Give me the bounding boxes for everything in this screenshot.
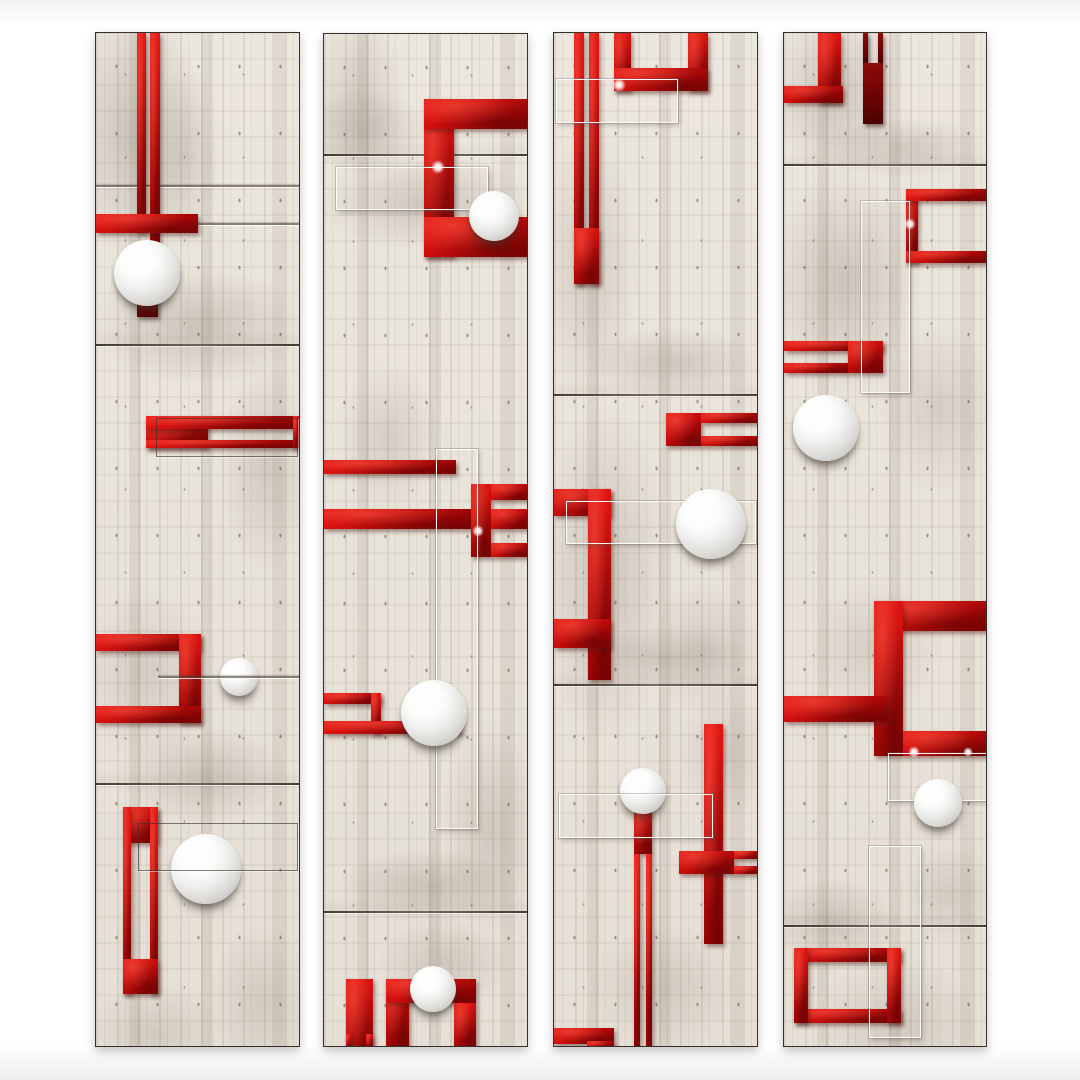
dark-red-block xyxy=(863,33,868,63)
red-block xyxy=(784,86,843,103)
sparkle-glint xyxy=(431,160,445,174)
red-block xyxy=(574,228,599,284)
dark-outline xyxy=(138,823,298,871)
glass-outline xyxy=(559,794,713,838)
sphere-3d xyxy=(469,191,519,241)
red-block xyxy=(906,189,987,201)
red-block xyxy=(587,1041,614,1047)
texture-smudge xyxy=(211,923,300,1047)
groove-line xyxy=(96,185,300,187)
red-block xyxy=(491,543,528,557)
sphere-3d xyxy=(914,779,962,827)
red-block xyxy=(634,854,640,1046)
red-block xyxy=(679,851,734,874)
red-block xyxy=(96,214,198,233)
panel-seam xyxy=(554,684,758,686)
glass-outline xyxy=(436,449,478,829)
red-block xyxy=(701,413,758,423)
groove-line xyxy=(158,676,300,678)
dark-red-block xyxy=(863,63,883,124)
panel-4 xyxy=(783,32,987,1047)
red-block xyxy=(96,706,201,723)
glass-outline xyxy=(869,846,921,1038)
red-block xyxy=(150,33,160,243)
panel-seam xyxy=(96,783,300,785)
panel-3 xyxy=(553,32,758,1047)
red-block xyxy=(454,1003,476,1047)
red-block xyxy=(734,866,758,874)
sparkle-glint xyxy=(612,78,626,92)
red-block xyxy=(906,251,987,263)
panel-seam xyxy=(96,344,300,346)
sparkle-glint xyxy=(904,218,916,230)
panel-1 xyxy=(95,32,300,1047)
panel-2 xyxy=(323,33,528,1047)
texture-smudge xyxy=(339,364,439,514)
texture-smudge xyxy=(95,983,221,1047)
red-block xyxy=(491,484,528,500)
sphere-3d xyxy=(401,680,467,746)
red-block xyxy=(137,33,146,233)
red-block xyxy=(646,854,652,1046)
sparkle-glint xyxy=(963,747,973,757)
red-block xyxy=(734,851,758,859)
sphere-3d xyxy=(410,966,456,1012)
sphere-3d xyxy=(114,240,180,306)
dark-outline xyxy=(156,418,298,457)
panel-seam xyxy=(324,911,528,913)
panel-seam xyxy=(554,394,758,396)
red-block xyxy=(784,696,888,722)
artwork-canvas xyxy=(0,0,1080,1080)
panel-seam xyxy=(784,164,987,166)
red-block xyxy=(491,509,528,529)
dark-red-block xyxy=(878,33,883,63)
red-block xyxy=(784,363,848,373)
sparkle-glint xyxy=(472,525,484,537)
red-block xyxy=(424,99,528,129)
red-block xyxy=(794,948,808,1023)
texture-smudge xyxy=(589,328,758,398)
red-block xyxy=(554,619,611,648)
red-block xyxy=(701,436,758,446)
glass-outline xyxy=(336,167,488,210)
red-block xyxy=(123,959,158,994)
sparkle-glint xyxy=(908,746,920,758)
red-block xyxy=(666,413,701,446)
sphere-3d xyxy=(676,489,746,559)
red-block xyxy=(346,1034,351,1047)
red-block xyxy=(366,1034,373,1047)
glass-outline xyxy=(861,201,910,393)
red-block xyxy=(874,601,903,756)
sphere-3d xyxy=(793,395,859,461)
texture-smudge xyxy=(221,363,300,573)
